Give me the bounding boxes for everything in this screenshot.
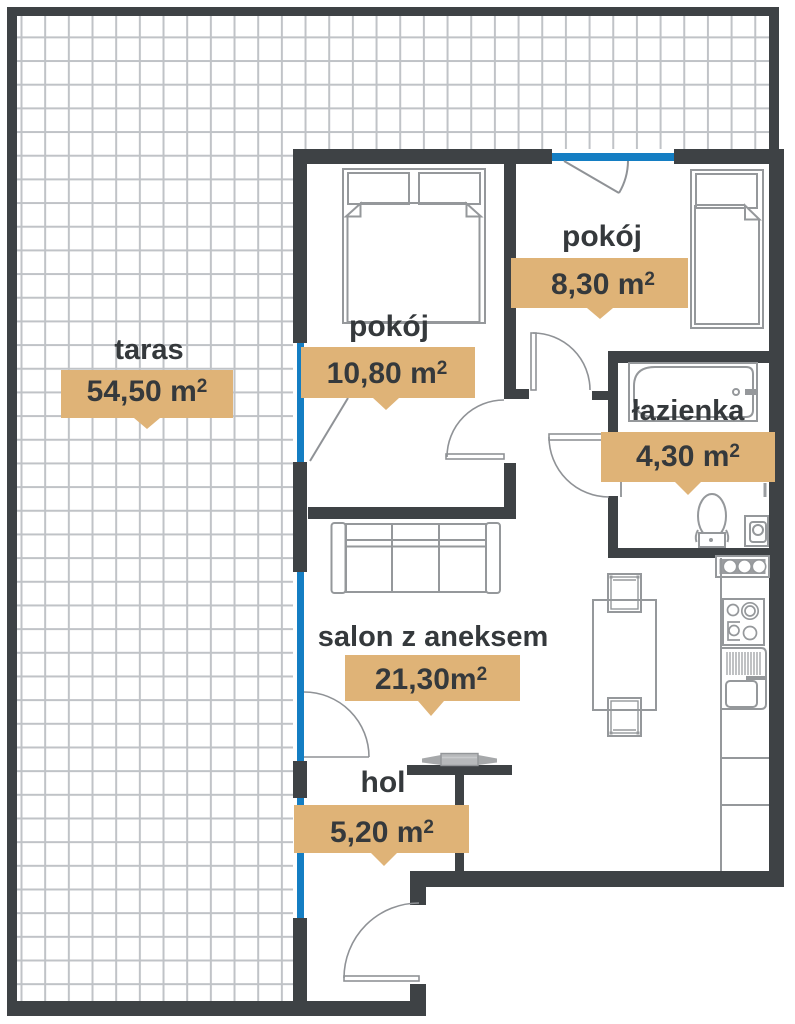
svg-text:5,20 m2: 5,20 m2: [330, 816, 434, 849]
svg-text:hol: hol: [361, 766, 406, 799]
svg-text:taras: taras: [114, 334, 183, 366]
svg-text:10,80 m2: 10,80 m2: [327, 357, 448, 390]
svg-text:21,30m2: 21,30m2: [375, 663, 487, 696]
svg-text:pokój: pokój: [349, 310, 429, 343]
svg-text:8,30 m2: 8,30 m2: [551, 268, 655, 301]
svg-text:łazienka: łazienka: [632, 395, 746, 427]
svg-text:4,30 m2: 4,30 m2: [636, 440, 740, 473]
svg-text:54,50 m2: 54,50 m2: [87, 375, 208, 408]
svg-text:salon z aneksem: salon z aneksem: [318, 621, 549, 653]
svg-text:pokój: pokój: [562, 220, 642, 253]
